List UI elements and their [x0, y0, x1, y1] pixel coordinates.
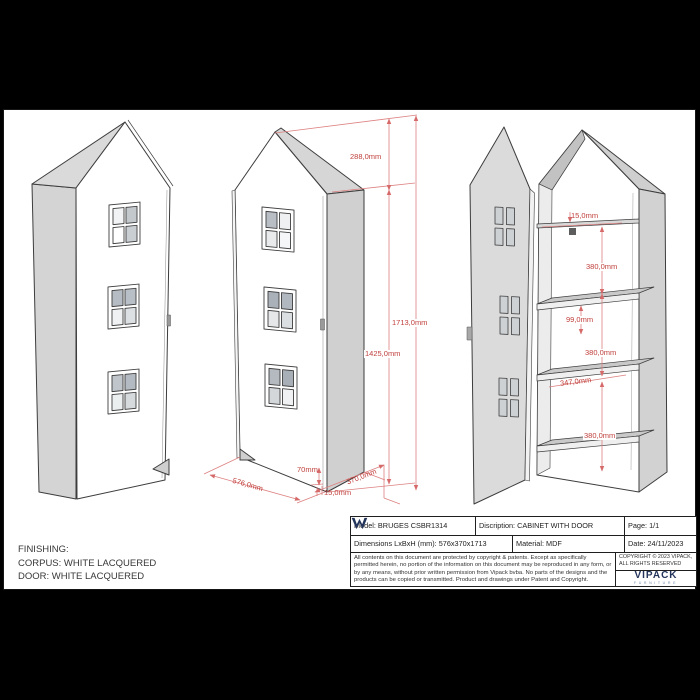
view-dimensioned	[232, 128, 364, 492]
dim-top-section: 380,0mm	[585, 263, 618, 271]
material-cell: Material: MDF	[513, 536, 625, 553]
copyright-column: COPYRIGHT © 2023 VIPACK, ALL RIGHTS RESE…	[616, 553, 696, 586]
dim-door-thickness: 15,0mm	[324, 489, 351, 497]
dim-middle-section: 380,0mm	[584, 349, 617, 357]
ext-door-bottom	[297, 492, 325, 503]
drawing-sheet: 288,0mm 1713,0mm 1425,0mm 70mm 576,0mm 1…	[3, 109, 696, 590]
dim-shelf-thickness: 15,0mm	[571, 212, 598, 220]
window-3	[108, 369, 139, 414]
title-block-row-1: Model: BRUGES CSBR1314 Discription: CABI…	[351, 517, 696, 536]
title-block-row-3: All contents on this document are protec…	[351, 553, 696, 586]
finishing-door: DOOR: WHITE LACQUERED	[18, 570, 156, 584]
dim-plinth-height: 70mm	[297, 466, 318, 474]
date-cell: Date: 24/11/2023	[625, 536, 696, 553]
vipack-w-icon	[351, 517, 368, 530]
finishing-corpus: CORPUS: WHITE LACQUERED	[18, 557, 156, 571]
brand-text: VIPACK FURNITURE	[634, 571, 678, 586]
page-cell: Page: 1/1	[625, 517, 696, 535]
description-cell: Discription: CABINET WITH DOOR	[476, 517, 625, 535]
door-handle	[167, 315, 171, 326]
mid-window-3	[265, 364, 297, 409]
mid-door-handle	[321, 319, 325, 330]
window-1	[109, 202, 140, 247]
ext-depth-tail	[384, 498, 400, 504]
dimensions-cell: Dimensions LxBxH (mm): 576x370x1713	[351, 536, 513, 553]
finishing-notes: FINISHING: CORPUS: WHITE LACQUERED DOOR:…	[18, 543, 156, 584]
legal-text: All contents on this document are protec…	[351, 553, 616, 586]
mid-window-1	[262, 207, 294, 252]
brand-logo: VIPACK FURNITURE	[616, 571, 696, 586]
mid-right-side-panel	[327, 190, 364, 492]
brand-name: VIPACK	[634, 571, 677, 581]
title-block-row-2: Dimensions LxBxH (mm): 576x370x1713 Mate…	[351, 536, 696, 554]
ext-bottom-left	[204, 457, 240, 474]
dim-total-height: 1713,0mm	[391, 319, 428, 327]
finishing-title: FINISHING:	[18, 543, 156, 557]
hinge-block	[569, 228, 576, 235]
ext-top	[275, 115, 417, 133]
mid-window-2	[264, 287, 296, 332]
brand-subtitle: FURNITURE	[634, 582, 678, 586]
view-closed-left	[32, 120, 173, 499]
model-cell: Model: BRUGES CSBR1314	[351, 517, 476, 535]
page-background: 288,0mm 1713,0mm 1425,0mm 70mm 576,0mm 1…	[0, 0, 700, 700]
title-block: Model: BRUGES CSBR1314 Discription: CABI…	[350, 516, 697, 587]
open-door-handle	[467, 327, 472, 340]
dim-body-height: 1425,0mm	[364, 350, 401, 358]
left-side-panel	[32, 184, 76, 499]
open-door-panel	[470, 127, 530, 504]
window-2	[108, 284, 139, 329]
dim-roof-height: 288,0mm	[350, 153, 381, 161]
dim-bottom-section: 380,0mm	[583, 432, 616, 440]
carcass-right-side	[639, 189, 667, 492]
copyright-text: COPYRIGHT © 2023 VIPACK, ALL RIGHTS RESE…	[616, 553, 696, 571]
dim-shelf-section: 99,0mm	[565, 316, 594, 324]
